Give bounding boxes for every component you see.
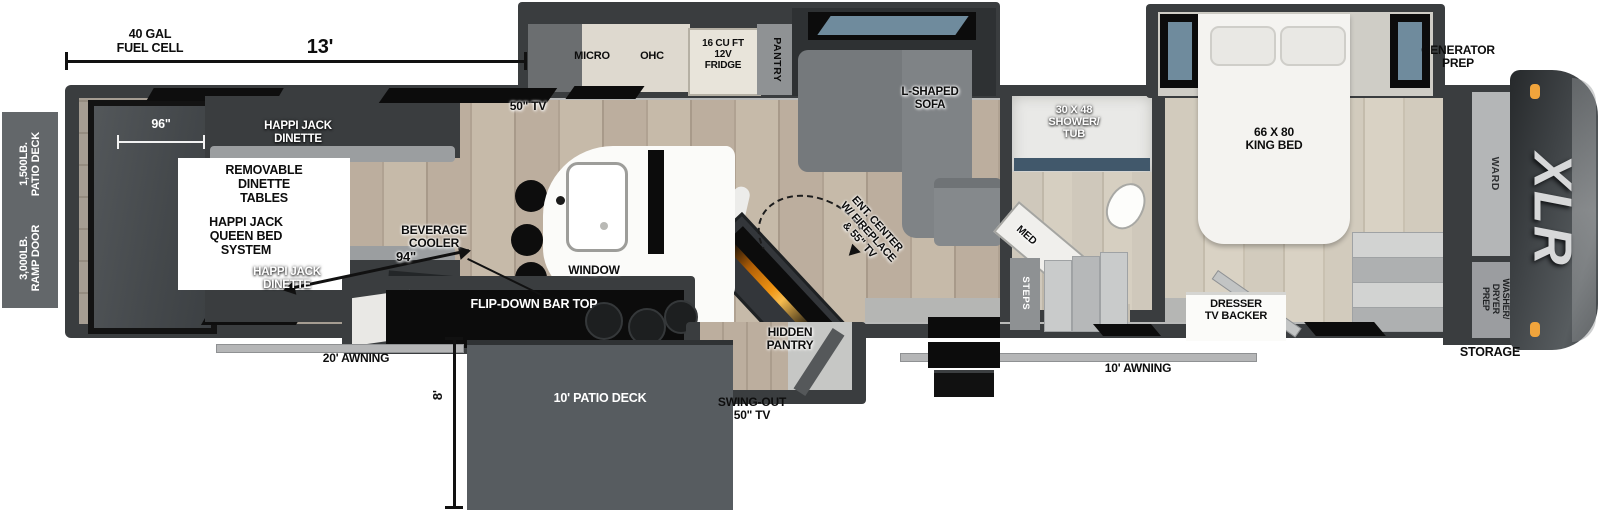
- bedroom-step: [1352, 282, 1448, 308]
- deck-dim-tick: [445, 337, 463, 340]
- garage-length-label: 13': [290, 36, 350, 58]
- bedroom-step: [1352, 257, 1448, 283]
- entry-steps: [928, 342, 1000, 368]
- interior-width-label: 94": [382, 250, 430, 264]
- garage-dim-tick: [524, 52, 527, 70]
- washer-label: WASHER/ DRYER PREP: [1480, 270, 1510, 328]
- entry-door: [928, 317, 1000, 338]
- island-appliance: [648, 150, 664, 254]
- island-sink: [566, 162, 628, 252]
- bev-cooler-label: BEVERAGE COOLER: [382, 224, 486, 250]
- bottom-window: [1304, 322, 1386, 336]
- ramp-dim-tick: [117, 135, 119, 149]
- micro-label: MICRO: [566, 50, 618, 62]
- bedroom-window-left-glass: [1168, 22, 1192, 80]
- garage-dim-line: [66, 60, 526, 63]
- dinette-bottom-label: HAPPI JACK DINETTE: [230, 266, 344, 291]
- ramp-width-label: 96": [125, 118, 197, 132]
- patio-deck-label: 10' PATIO DECK: [530, 392, 670, 406]
- ohc-label: OHC: [632, 50, 672, 62]
- garage-tv-label: 50" TV: [492, 100, 564, 113]
- king-bed-label: 66 X 80 KING BED: [1226, 126, 1322, 152]
- floorplan-canvas: XLR 40 GAL FUEL CELL 13' 96" 94" 8' 1,50…: [0, 0, 1600, 510]
- ramp-dim-tick: [203, 135, 205, 149]
- dinette-top-label: HAPPI JACK DINETTE: [238, 120, 358, 145]
- sink-faucet: [556, 196, 565, 205]
- step-tread: [1072, 256, 1100, 332]
- island-stool: [515, 180, 547, 212]
- shower-glass: [1014, 158, 1150, 171]
- wardrobe-label: WARD: [1488, 151, 1500, 197]
- steps-label: STEPS: [1020, 265, 1030, 321]
- tables-note-label: REMOVABLE DINETTE TABLES: [182, 164, 346, 205]
- ramp-rating-label: 3,000LB. RAMP DOOR: [18, 218, 42, 298]
- awning-right-label: 10' AWNING: [1090, 362, 1186, 375]
- sink-drain: [600, 222, 608, 230]
- ramp-dim-line: [118, 141, 204, 143]
- deck-dim-line: [453, 338, 456, 508]
- island-stool: [511, 224, 543, 256]
- xlr-logo: XLR: [1522, 150, 1581, 270]
- patio-rating-label: 1,500LB. PATIO DECK: [18, 124, 42, 204]
- awning-left-label: 20' AWNING: [306, 352, 406, 365]
- marker-light: [1530, 84, 1540, 99]
- bed-note-label: HAPPI JACK QUEEN BED SYSTEM: [178, 216, 314, 257]
- hidden-pantry-label: HIDDEN PANTRY: [740, 326, 840, 352]
- accent-chair: [934, 178, 1002, 246]
- shower-label: 30 X 48 SHOWER/ TUB: [1042, 104, 1106, 140]
- fridge-label: 16 CU FT 12V FRIDGE: [690, 38, 756, 71]
- bottom-window: [1093, 324, 1161, 336]
- deck-dim-tick: [445, 506, 463, 509]
- kitchen-wall-window: [565, 86, 644, 99]
- step-tread: [1100, 252, 1128, 332]
- sofa-window-glass: [817, 16, 968, 35]
- bedroom-step: [1352, 232, 1448, 258]
- window-label: WINDOW: [556, 264, 632, 277]
- patio-deck: [467, 340, 733, 510]
- swing-tv-label: SWING-OUT 50" TV: [700, 396, 804, 422]
- dresser-label: DRESSER TV BACKER: [1190, 298, 1282, 322]
- pantry-label: PANTRY: [770, 29, 782, 91]
- deck-depth-label: 8': [431, 375, 445, 415]
- garage-dim-tick: [65, 52, 68, 70]
- bed-pillow: [1280, 26, 1346, 66]
- marker-light: [1530, 322, 1540, 337]
- bed-pillow: [1210, 26, 1276, 66]
- generator-label: GENERATOR PREP: [1408, 44, 1508, 70]
- fuel-cell-label: 40 GAL FUEL CELL: [90, 28, 210, 56]
- step-tread: [1044, 260, 1072, 332]
- sofa-label: L-SHAPED SOFA: [890, 86, 970, 111]
- entry-steps-lower: [934, 370, 994, 397]
- storage-label: STORAGE: [1448, 346, 1532, 360]
- bar-top-label: FLIP-DOWN BAR TOP: [414, 298, 654, 312]
